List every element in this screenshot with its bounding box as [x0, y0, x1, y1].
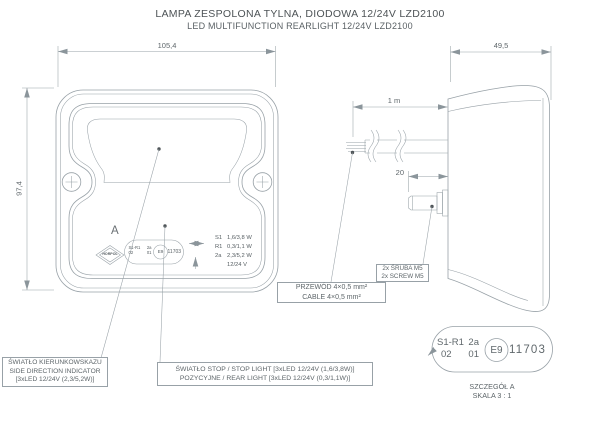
- screw-left-icon: [62, 173, 81, 192]
- rear-label-line: POZYCYJNE / REAR LIGHT [3xLED 12/24V (0,…: [158, 374, 372, 383]
- dimension-width-value: 105,4: [152, 41, 182, 50]
- side-profile-outline: [448, 86, 550, 312]
- front-view-drawing: [22, 46, 278, 362]
- mark-large-code2: 01: [468, 349, 479, 361]
- cable-label-box: PRZEWÓD 4×0,5 mm² CABLE 4×0,5 mm²: [277, 282, 386, 303]
- cable-label-pl: PRZEWÓD 4×0,5 mm²: [278, 283, 385, 292]
- stop-label-line: ŚWIATŁO STOP / STOP LIGHT [3xLED 12/24V …: [158, 365, 372, 374]
- screws-label-pl: 2x ŚRUBA M5: [377, 265, 428, 273]
- side-view-drawing: [331, 46, 551, 312]
- mark-large-class: 2a: [468, 337, 479, 349]
- ratings-table: S1 1,6/3,8 W R1 0,3/1,1 W 2a 2,3/5,2 W 1…: [215, 234, 252, 270]
- dimension-height-lines: [22, 88, 54, 290]
- detail-letter-marker: A: [111, 225, 119, 237]
- detail-caption-scale: SKALA 3 : 1: [442, 391, 542, 400]
- dimension-screw-lines: [409, 171, 449, 192]
- drawing-title: LAMPA ZESPOLONA TYLNA, DIODOWA 12/24V LZ…: [0, 8, 600, 31]
- dimension-cable-value: 1 m: [380, 96, 408, 105]
- cable-break-marks: [368, 130, 406, 162]
- horpol-brand-text: HORPOL: [96, 252, 124, 256]
- indicator-label-spec: [3xLED 12/24V (2,3/5,2W)]: [3, 376, 107, 385]
- side-bottom-seam: [448, 270, 528, 301]
- dimension-height-value: 97,4: [15, 174, 24, 204]
- mark-small-number: 11703: [168, 249, 182, 255]
- dimension-width-lines: [58, 46, 276, 87]
- dimension-depth-lines: [451, 46, 552, 100]
- dimension-cable-lines: [353, 101, 448, 137]
- stop-rear-label-box: ŚWIATŁO STOP / STOP LIGHT [3xLED 12/24V …: [157, 362, 373, 386]
- approval-mark-small-text: S1-R1 2a 02 01: [129, 245, 152, 256]
- detail-caption-title: SZCZEGÓŁ A: [442, 382, 542, 391]
- mark-large-e-mark: E9: [485, 345, 508, 356]
- dimension-depth-value: 49,5: [486, 41, 516, 50]
- screws-label-en: 2x SCREW M5: [377, 273, 428, 281]
- mark-large-category: S1-R1: [437, 337, 464, 349]
- approval-mark-large-text: S1-R1 2a 02 01: [437, 337, 479, 361]
- rating-row: R1 0,3/1,1 W: [215, 243, 252, 252]
- mark-large-code1: 02: [441, 349, 452, 361]
- screw-right-icon: [253, 173, 272, 192]
- indicator-label-box: ŚWIATŁO KIERUNKOWSKAZU SIDE DIRECTION IN…: [2, 357, 108, 387]
- title-line-pl: LAMPA ZESPOLONA TYLNA, DIODOWA 12/24V LZ…: [0, 8, 600, 20]
- screw-leader-line: [423, 207, 432, 265]
- mark-small-code1: 02: [129, 250, 134, 256]
- mark-small-e-mark: E9: [154, 249, 168, 254]
- cable-lines: [346, 140, 448, 153]
- indicator-label-en: SIDE DIRECTION INDICATOR: [3, 368, 107, 377]
- mark-small-code2: 01: [147, 250, 152, 256]
- rating-row: 12/24 V: [215, 261, 252, 270]
- technical-drawing-canvas: LAMPA ZESPOLONA TYLNA, DIODOWA 12/24V LZ…: [0, 0, 600, 424]
- dimension-screw-value: 20: [384, 168, 404, 177]
- mark-large-number: 11703: [509, 344, 546, 356]
- indicator-label-pl: ŚWIATŁO KIERUNKOWSKAZU: [3, 359, 107, 368]
- title-line-en: LED MULTIFUNCTION REARLIGHT 12/24V LZD21…: [0, 21, 600, 31]
- side-top-seam: [448, 101, 541, 112]
- upper-lens-panel: [87, 119, 246, 183]
- rating-row: 2a 2,3/5,2 W: [215, 252, 252, 261]
- screws-label-box: 2x ŚRUBA M5 2x SCREW M5: [376, 264, 429, 282]
- cable-leader-line: [331, 153, 353, 283]
- mounting-screw-drawing: [409, 190, 449, 216]
- rating-row: S1 1,6/3,8 W: [215, 234, 252, 243]
- stop-leader-line: [160, 226, 165, 362]
- cable-label-en: CABLE 4×0,5 mm²: [278, 293, 385, 302]
